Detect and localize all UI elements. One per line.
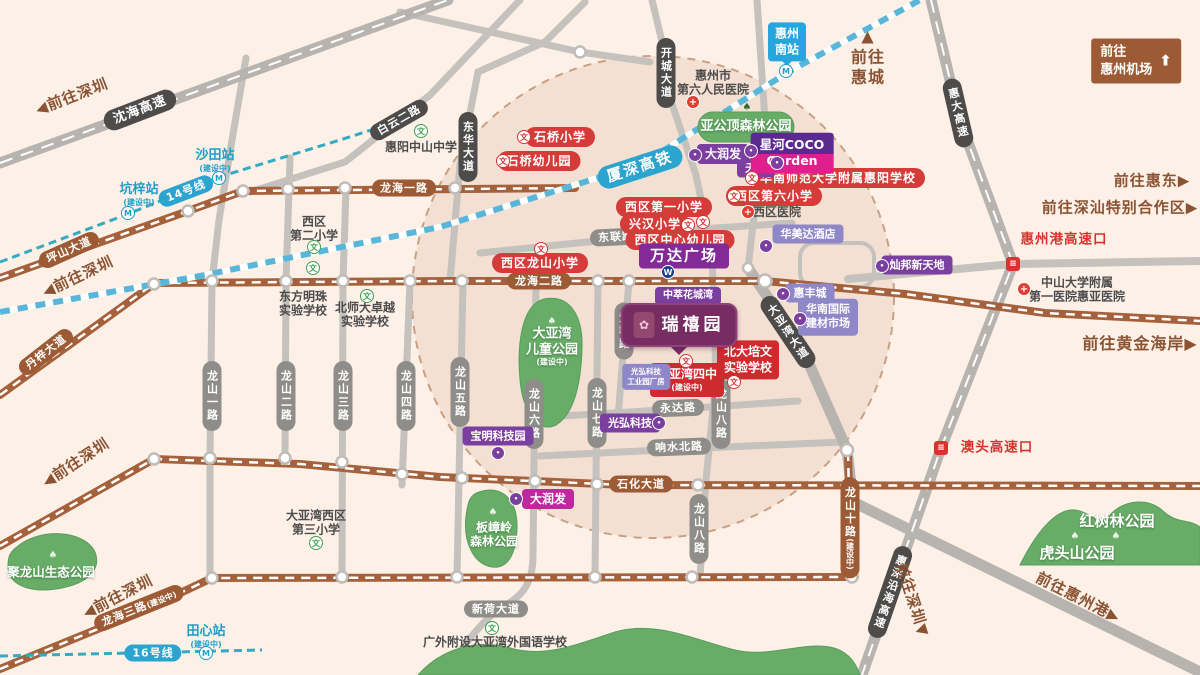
poi-box-guanghong-industrial: 光弘科技 工业园厂房 xyxy=(622,364,670,390)
poi-jiancai-line2: 建材市场 xyxy=(806,317,850,331)
tree-icon: ♠ xyxy=(1112,532,1121,542)
direction-to-airport-box: 前往 惠州机场 ⬆ xyxy=(1091,38,1181,83)
hospital-no6-line1: 惠州市 xyxy=(677,69,749,83)
project-badge: ✿ 瑞禧园 xyxy=(621,303,738,347)
road-pill-shihua: 石化大道 xyxy=(609,476,673,493)
wanda-logo-icon: W xyxy=(661,265,675,279)
school-dfmz-line2: 实验学校 xyxy=(279,304,327,318)
poi-gh-line1: 光弘科技 xyxy=(627,367,665,377)
tree-icon: ♠ xyxy=(49,551,58,561)
direction-to-shenshan: 前往深汕特别合作区▶ xyxy=(1042,201,1199,216)
direction-to-huidong: 前往惠东▶ xyxy=(1114,174,1191,189)
park-label-banzhangling: 板嶂岭 森林公园 xyxy=(470,521,518,550)
park-label-hutoushan: 虎头山公园 xyxy=(1039,544,1114,562)
direction-airport-line2: 惠州机场 xyxy=(1100,61,1152,79)
metro-station-icon-tianxin: M xyxy=(199,646,213,660)
shop-marker-icon: • xyxy=(744,144,758,158)
metro-station-shatian: 沙田站 (建设中) xyxy=(195,149,234,173)
school-beida-line1: 北大培文 xyxy=(724,344,772,360)
shop-marker-icon: • xyxy=(759,239,773,253)
direction-huicheng-line2: 惠城 xyxy=(851,69,885,87)
school-xiqu2-line1: 西区 xyxy=(290,215,338,229)
tree-icon: ♠ xyxy=(489,508,498,518)
poi-tag-canbang: 灿邦新天地 xyxy=(882,256,953,275)
hospital-zsu-line2: 第一医院惠亚医院 xyxy=(1029,290,1125,304)
school-marker-icon: 文 xyxy=(696,215,710,229)
road-pill-longshan3: 龙山三路 xyxy=(334,361,353,431)
project-name: 瑞禧园 xyxy=(662,317,725,334)
poi-box-wanda-plaza: 万达广场 xyxy=(639,244,729,269)
school-marker-icon: 文 xyxy=(534,242,548,256)
poi-box-coco-garden: 星河COCO Garden xyxy=(751,133,834,174)
station-kengzi-name: 坑梓站 xyxy=(119,183,158,198)
park-banzhang-line2: 森林公园 xyxy=(470,535,518,549)
school-marker-icon: 文 xyxy=(679,354,693,368)
shop-marker-icon: • xyxy=(770,156,784,170)
poi-tag-ramada-hotel: 华美达酒店 xyxy=(773,225,844,244)
school-marker-icon: 文 xyxy=(496,154,510,168)
poi-coco-line1: 星河COCO xyxy=(760,137,825,153)
school-marker-icon: 文 xyxy=(485,621,499,635)
road-pill-xiangshui: 响水北路 xyxy=(647,437,712,456)
exit-huizhou-port: 惠州港高速口 xyxy=(1021,233,1108,247)
tree-icon: ♠ xyxy=(548,317,557,327)
shop-marker-icon: • xyxy=(793,312,807,326)
direction-huicheng-line1: 前往 xyxy=(851,48,885,66)
road-pill-kaicheng: 开城大道 xyxy=(657,38,676,108)
road-pill-longhai2: 龙海二路 xyxy=(507,273,571,290)
poi-tag-rtmart-north: 大润发 xyxy=(697,144,749,164)
school-bsd-line2: 实验学校 xyxy=(335,315,395,329)
metro-station-icon-shatian: M xyxy=(212,171,226,185)
station-box-huizhou-south: 惠州 南站 xyxy=(768,22,806,61)
park-children-line1: 大亚湾 xyxy=(526,327,578,343)
metro-station-icon-south: M xyxy=(779,64,793,78)
school-marker-icon: 文 xyxy=(517,130,531,144)
interchange-icon-port: ≡ xyxy=(1006,257,1020,271)
road-pill-yongda: 永达路 xyxy=(652,399,705,418)
road-pill-longshan1: 龙山一路 xyxy=(203,361,222,431)
road-pill-xinhe: 新荷大道 xyxy=(464,601,528,618)
poi-gh-line2: 工业园厂房 xyxy=(627,377,665,387)
park-children-status: (建设中) xyxy=(526,358,578,368)
metro-station-icon-kengzi: M xyxy=(121,206,135,220)
shop-marker-icon: • xyxy=(652,416,666,430)
tree-icon: ♠ xyxy=(1071,532,1080,542)
school-pill-xiqu-longshan: 西区龙山小学 xyxy=(492,253,588,273)
road-longshan10-status: (建设中) xyxy=(846,538,855,569)
school-marker-icon: 文 xyxy=(307,240,321,254)
road-pill-longshan5: 龙山五路 xyxy=(451,357,470,427)
school-marker-icon: 文 xyxy=(727,189,741,203)
direction-airport-line1: 前往 xyxy=(1100,43,1152,61)
school-marker-icon: 文 xyxy=(727,375,741,389)
school-marker-icon: 文 xyxy=(414,124,428,138)
location-map: 厦深高铁 14号线 16号线 惠州 南站 M 沙田站 (建设中) M 坑梓站 (… xyxy=(0,0,1200,675)
poi-tag-rtmart-south: 大润发 xyxy=(522,489,574,509)
park-label-hongshulin: 红树林公园 xyxy=(1079,512,1154,530)
tree-icon: ♠ xyxy=(743,103,752,113)
school-marker-icon: 文 xyxy=(309,536,323,550)
poi-box-building-materials-market: 华南国际 建材市场 xyxy=(798,299,858,336)
station-huizhou-south-line1: 惠州 xyxy=(775,26,799,42)
park-label-children: 大亚湾 儿童公园 (建设中) xyxy=(526,327,578,368)
hospital-text-zsu-huiya: 中山大学附属 第一医院惠亚医院 xyxy=(1029,276,1125,305)
arrow-up-icon: ▲ xyxy=(861,28,874,46)
school-text-huiyang-zhongshan: 惠阳中山中学 xyxy=(385,140,457,154)
metro-station-kengzi: 坑梓站 (建设中) xyxy=(119,183,158,207)
direction-to-golden-coast: 前往黄金海岸▶ xyxy=(1082,336,1197,352)
road-pill-donghua: 东华大道 xyxy=(459,112,478,182)
school-marker-icon: 文 xyxy=(360,289,374,303)
interchange-icon-aotou: ≡ xyxy=(934,441,948,455)
poi-tag-guanghong-tech: 光弘科技 xyxy=(600,414,660,433)
park-children-line2: 儿童公园 xyxy=(526,342,578,358)
park-julongshan xyxy=(8,534,97,590)
shop-marker-icon: • xyxy=(688,148,702,162)
shop-marker-icon: • xyxy=(509,492,523,506)
school-text-gwfs-foreign-language: 广外附设大亚湾外国语学校 xyxy=(423,635,567,649)
hospital-text-xiqu: 西区医院 xyxy=(753,205,801,219)
school-text-dongfang-mingzhu: 东方明珠 实验学校 xyxy=(279,290,327,319)
shop-marker-icon: • xyxy=(491,446,505,460)
school-marker-icon: 文 xyxy=(306,261,320,275)
shop-marker-icon: • xyxy=(776,287,790,301)
school-pill-shiqiao-primary: 石桥小学 xyxy=(525,127,595,147)
road-pill-longshan4: 龙山四路 xyxy=(397,361,416,431)
station-huizhou-south-line2: 南站 xyxy=(775,42,799,58)
school-dyw3-line1: 大亚湾西区 xyxy=(286,509,346,523)
school-dfmz-line1: 东方明珠 xyxy=(279,290,327,304)
school-marker-icon: 文 xyxy=(745,171,759,185)
shop-marker-icon: • xyxy=(875,259,889,273)
project-logo-icon: ✿ xyxy=(634,312,655,338)
hospital-cross-icon: + xyxy=(1017,282,1031,296)
road-pill-longhai1: 龙海一路 xyxy=(372,180,436,197)
hospital-text-no6-peoples: 惠州市 第六人民医院 xyxy=(677,69,749,98)
station-shatian-name: 沙田站 xyxy=(195,149,234,164)
map-canvas xyxy=(0,0,1200,675)
road-pill-longshan2: 龙山二路 xyxy=(277,361,296,431)
park-label-julongshan: 聚龙山生态公园 xyxy=(7,565,95,580)
road-pill-longshan8-south: 龙山八路 xyxy=(690,494,709,564)
poi-jiancai-line1: 华南国际 xyxy=(806,303,850,317)
road-pill-longshan10: 龙山十路(建设中) xyxy=(841,477,860,578)
metro-pill-line16: 16号线 xyxy=(124,645,181,662)
hospital-zsu-line1: 中山大学附属 xyxy=(1029,276,1125,290)
poi-tag-baoming-tech-park: 宝明科技园 xyxy=(463,427,534,446)
park-banzhang-line1: 板嶂岭 xyxy=(470,521,518,535)
direction-airport-text: 前往 惠州机场 xyxy=(1100,43,1152,78)
arrow-up-icon: ⬆ xyxy=(1159,51,1172,71)
hospital-cross-icon: + xyxy=(686,95,700,109)
school-beida-line2: 实验学校 xyxy=(724,360,772,376)
road-longshan10-name: 龙山十路 xyxy=(844,486,857,538)
station-tianxin-name: 田心站 xyxy=(186,625,225,640)
direction-to-huicheng: ▲ 前往 惠城 xyxy=(851,28,885,87)
hospital-cross-icon: + xyxy=(741,205,755,219)
hospital-no6-line2: 第六人民医院 xyxy=(677,83,749,97)
road-longshan1 xyxy=(210,58,246,578)
school-marker-icon: 文 xyxy=(681,218,695,232)
school-text-xiqu-no3: 大亚湾西区 第三小学 xyxy=(286,509,346,538)
exit-aotou: 澳头高速口 xyxy=(961,441,1034,455)
school-text-bnu-zhuoyue: 北师大卓越 实验学校 xyxy=(335,301,395,330)
park-label-yagongding: 亚公顶森林公园 xyxy=(700,119,791,135)
